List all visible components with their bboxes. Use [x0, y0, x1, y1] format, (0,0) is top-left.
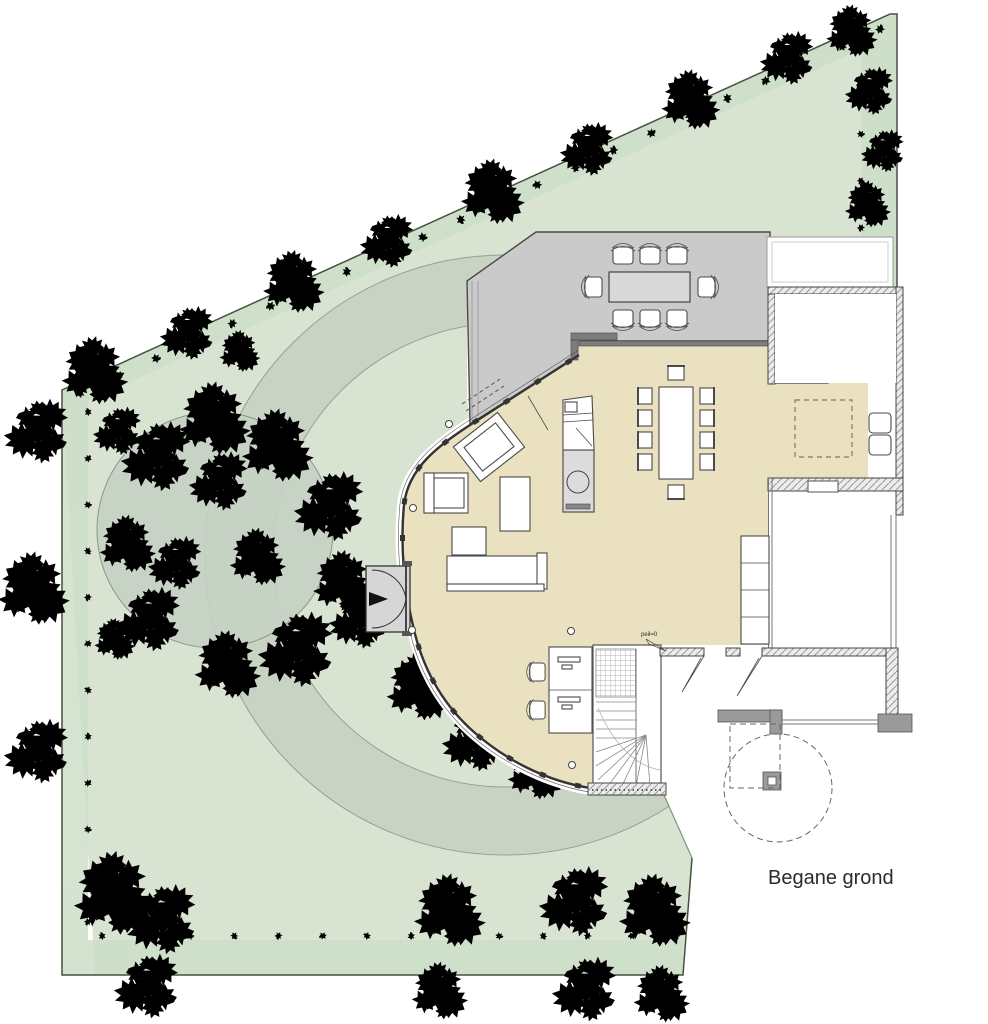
mullion-tick	[402, 498, 408, 505]
coffee-table	[500, 477, 530, 531]
kitchen-floor	[768, 383, 868, 478]
roof-eaves	[767, 237, 893, 287]
level-marker-label: peil=0	[641, 632, 658, 638]
site-plan-drawing: peil=0 Begane grond	[0, 0, 988, 1024]
entrance	[366, 561, 412, 636]
outdoor-dining-table	[609, 272, 690, 302]
mullion-tick	[400, 535, 405, 541]
page-title: Begane grond	[768, 867, 894, 889]
staircase	[593, 645, 661, 787]
storage-room	[775, 294, 896, 383]
floor-plan-page: peil=0 Begane grond	[0, 0, 988, 1024]
appliances	[869, 413, 891, 455]
armchair	[424, 473, 468, 513]
corner-column	[763, 772, 781, 790]
dining-table	[659, 387, 693, 479]
storage-cabinet	[741, 536, 769, 644]
